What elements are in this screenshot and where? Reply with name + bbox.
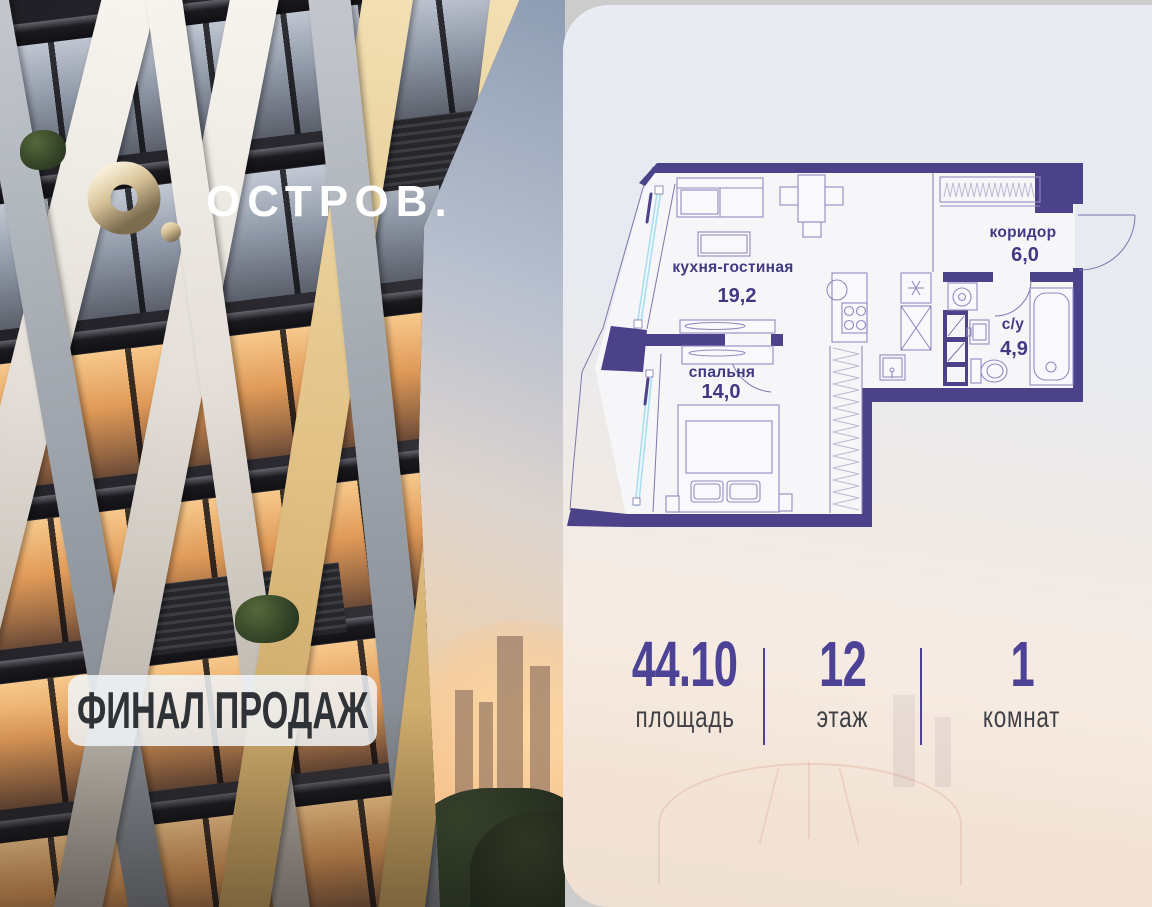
room-area-bathroom: 4,9 (1000, 338, 1028, 360)
wall-bottom (625, 514, 872, 527)
fridge-unit (901, 273, 931, 350)
ostrov-logo: ОСТРОВ. (86, 158, 454, 246)
bed (666, 405, 792, 512)
room-area-corridor: 6,0 (1011, 244, 1039, 266)
stat-rooms-value: 1 (1010, 637, 1034, 691)
logo-wordmark: ОСТРОВ. (206, 177, 454, 227)
floor-plan: кухня-гостиная 19,2 спальня 14,0 коридор… (565, 140, 1145, 540)
kitchen-sink-unit (880, 355, 905, 380)
wall-right (1073, 268, 1083, 402)
room-area-bedroom: 14,0 (702, 381, 741, 403)
faint-bridge-arch (658, 763, 962, 885)
room-area-kitchen-living: 19,2 (718, 285, 757, 307)
skyline-tower (455, 690, 473, 795)
stat-floor-value: 12 (819, 637, 866, 691)
ostrov-logo-mark-icon (86, 158, 186, 246)
kitchen-counter (827, 273, 867, 342)
stat-rooms-label: комнат (983, 703, 1060, 733)
apartment-card[interactable]: кухня-гостиная 19,2 спальня 14,0 коридор… (563, 5, 1152, 907)
room-label-bathroom: с/у (1002, 316, 1025, 333)
bathtub (1030, 288, 1073, 385)
apartment-stats: 44.10 площадь 12 этаж 1 комнат (563, 637, 1152, 767)
coffee-table (698, 232, 750, 256)
skyline-tower (497, 636, 523, 796)
skyline-tower (530, 666, 550, 796)
stat-area-label: площадь (635, 703, 734, 733)
final-sales-badge: ФИНАЛ ПРОДАЖ (68, 675, 377, 746)
room-label-bedroom: спальня (689, 364, 755, 381)
tv-console (680, 320, 775, 333)
stat-rooms: 1 комнат (922, 637, 1122, 733)
room-label-kitchen-living: кухня-гостиная (672, 259, 793, 276)
building-photo: ОСТРОВ. ФИНАЛ ПРОДАЖ (0, 0, 565, 907)
room-label-corridor: коридор (990, 224, 1057, 241)
washing-machine (948, 283, 977, 310)
skyline-tower (479, 702, 493, 794)
entrance-door-arc (1079, 215, 1135, 270)
stat-area: 44.10 площадь (585, 637, 785, 733)
sofa (677, 178, 763, 217)
wall-entry-step (1035, 163, 1083, 213)
stat-area-value: 44.10 (632, 637, 738, 691)
toilet (971, 359, 1007, 383)
stat-floor: 12 этаж (765, 637, 920, 733)
stat-floor-label: этаж (817, 703, 869, 733)
badge-label: ФИНАЛ ПРОДАЖ (77, 681, 368, 741)
bath-sink (967, 320, 989, 344)
bedroom-dresser (682, 346, 773, 364)
